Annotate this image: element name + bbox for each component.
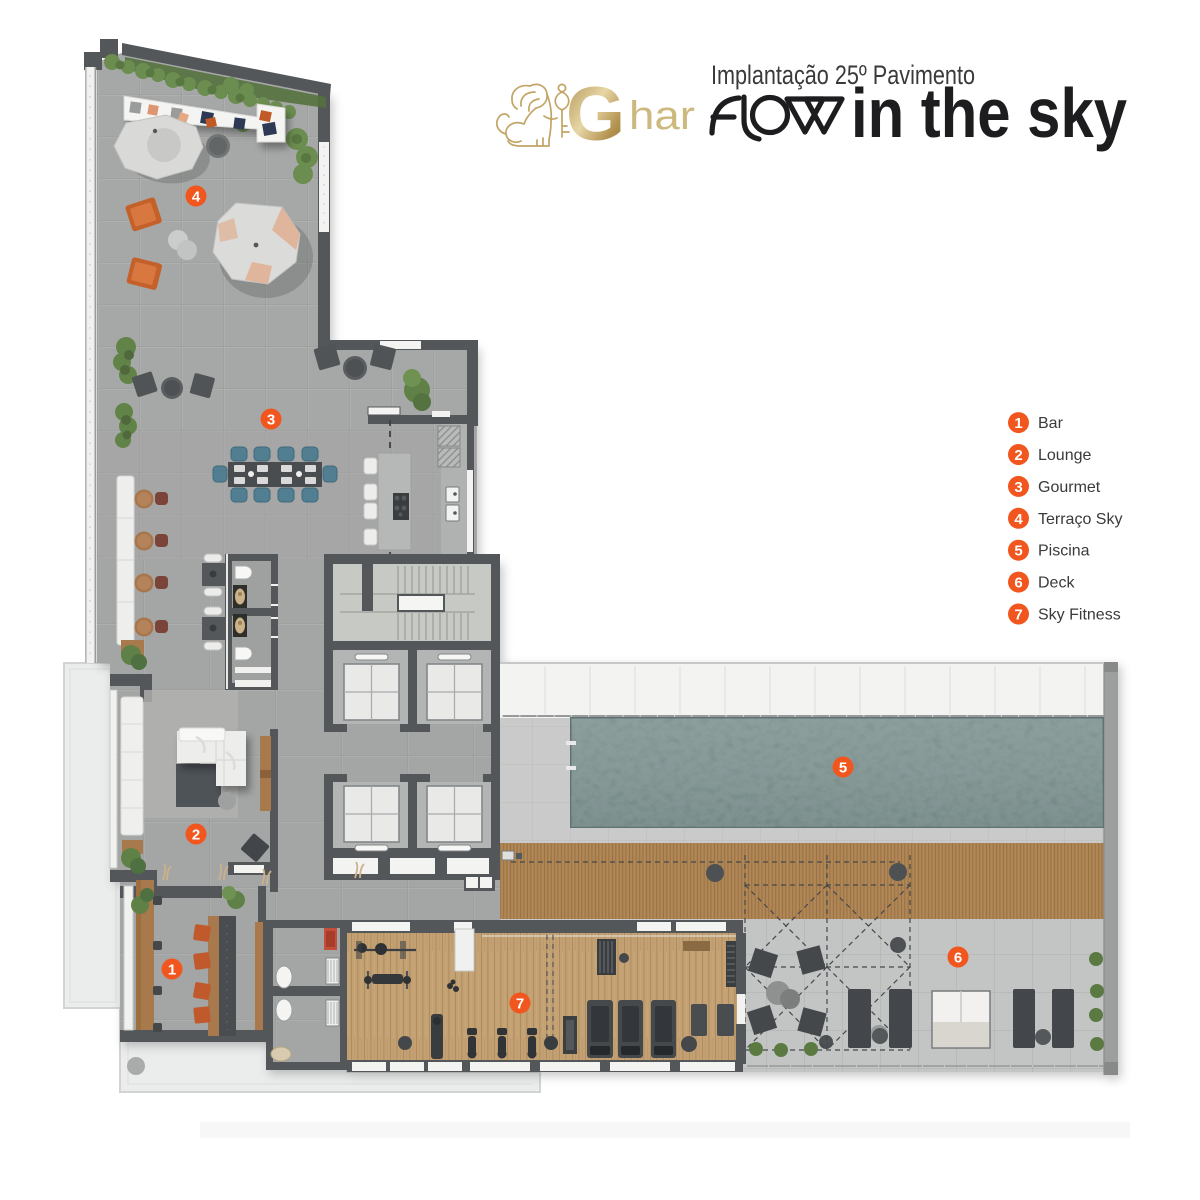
svg-text:5: 5 bbox=[1014, 543, 1022, 560]
svg-text:2: 2 bbox=[1014, 447, 1022, 464]
svg-text:1: 1 bbox=[1014, 415, 1022, 432]
svg-text:6: 6 bbox=[954, 950, 962, 967]
svg-text:har: har bbox=[629, 94, 695, 138]
svg-text:4: 4 bbox=[192, 189, 201, 206]
svg-text:3: 3 bbox=[1014, 479, 1022, 496]
svg-text:Bar: Bar bbox=[1038, 415, 1064, 432]
svg-text:4: 4 bbox=[1014, 511, 1023, 528]
svg-text:7: 7 bbox=[516, 996, 524, 1013]
svg-text:in the sky: in the sky bbox=[851, 74, 1127, 152]
svg-text:Sky Fitness: Sky Fitness bbox=[1038, 607, 1121, 624]
svg-text:Deck: Deck bbox=[1038, 575, 1075, 592]
svg-text:Gourmet: Gourmet bbox=[1038, 479, 1101, 496]
svg-text:6: 6 bbox=[1014, 575, 1022, 592]
svg-text:G: G bbox=[566, 72, 623, 157]
svg-text:1: 1 bbox=[168, 962, 176, 979]
svg-text:5: 5 bbox=[839, 760, 847, 777]
svg-text:Terraço Sky: Terraço Sky bbox=[1038, 511, 1122, 528]
svg-text:Piscina: Piscina bbox=[1038, 543, 1090, 560]
svg-text:2: 2 bbox=[192, 827, 200, 844]
svg-text:3: 3 bbox=[267, 412, 275, 429]
svg-text:Lounge: Lounge bbox=[1038, 447, 1091, 464]
svg-text:7: 7 bbox=[1014, 607, 1022, 624]
